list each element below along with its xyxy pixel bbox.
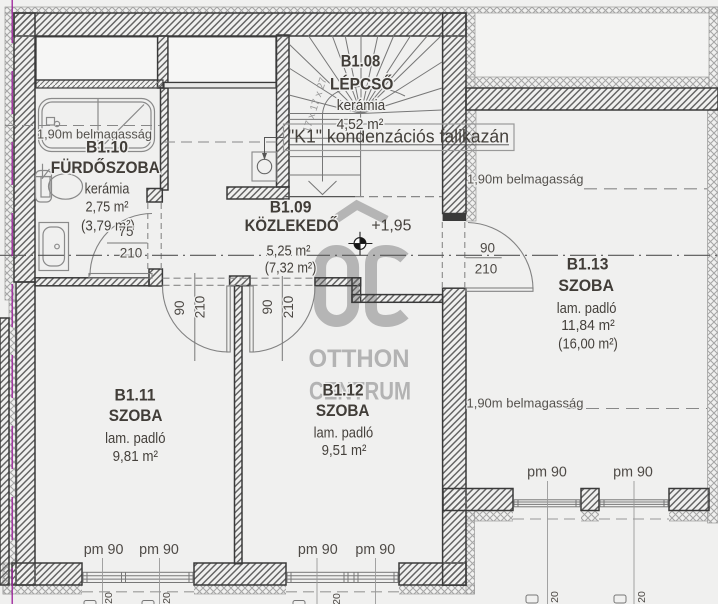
svg-text:B1.10: B1.10 xyxy=(86,138,128,157)
svg-text:2,75 m²: 2,75 m² xyxy=(86,198,129,215)
svg-text:90: 90 xyxy=(260,299,275,314)
svg-text:SZOBA: SZOBA xyxy=(558,276,614,295)
svg-text:(7,32 m²): (7,32 m²) xyxy=(265,260,317,277)
svg-text:90: 90 xyxy=(480,241,495,256)
svg-text:11,84 m²: 11,84 m² xyxy=(561,317,615,334)
svg-text:9,51 m²: 9,51 m² xyxy=(322,442,367,459)
svg-text:OTTHON: OTTHON xyxy=(309,345,410,373)
svg-text:kerámia: kerámia xyxy=(337,97,386,114)
svg-text:20: 20 xyxy=(636,591,648,603)
svg-text:B1.08: B1.08 xyxy=(341,52,381,71)
svg-text:210: 210 xyxy=(120,246,143,261)
svg-text:SZOBA: SZOBA xyxy=(316,401,370,420)
svg-text:210: 210 xyxy=(475,262,498,277)
svg-text:1,90m belmagasság: 1,90m belmagasság xyxy=(467,172,584,187)
svg-text:B1.11: B1.11 xyxy=(115,386,156,405)
svg-text:90: 90 xyxy=(172,300,187,315)
svg-text:9,81 m²: 9,81 m² xyxy=(113,448,158,465)
svg-text:pm 90: pm 90 xyxy=(84,542,124,558)
svg-text:20: 20 xyxy=(103,592,115,604)
svg-text:20: 20 xyxy=(161,592,173,604)
svg-text:B1.13: B1.13 xyxy=(567,255,609,274)
svg-text:pm 90: pm 90 xyxy=(355,542,395,558)
svg-text:B1.12: B1.12 xyxy=(323,381,364,400)
svg-text:(16,00 m²): (16,00 m²) xyxy=(558,336,618,353)
svg-text:SZOBA: SZOBA xyxy=(109,406,163,425)
svg-text:lam. padló: lam. padló xyxy=(105,430,165,447)
svg-text:1,90m belmagasság: 1,90m belmagasság xyxy=(467,395,584,410)
svg-text:210: 210 xyxy=(193,296,208,319)
svg-text:pm 90: pm 90 xyxy=(527,465,567,481)
svg-text:pm 90: pm 90 xyxy=(298,542,338,558)
svg-text:20: 20 xyxy=(549,591,561,603)
svg-text:KÖZLEKEDŐ: KÖZLEKEDŐ xyxy=(245,216,339,235)
svg-text:FÜRDŐSZOBA: FÜRDŐSZOBA xyxy=(51,158,160,177)
svg-text:+1,95: +1,95 xyxy=(371,218,411,235)
svg-text:210: 210 xyxy=(281,296,296,319)
svg-text:5,25 m²: 5,25 m² xyxy=(267,242,311,259)
svg-text:kerámia: kerámia xyxy=(85,181,130,198)
svg-text:20: 20 xyxy=(331,593,343,604)
svg-text:75: 75 xyxy=(118,224,133,239)
svg-text:B1.09: B1.09 xyxy=(270,198,312,217)
svg-text:LÉPCSŐ: LÉPCSŐ xyxy=(330,74,394,93)
svg-text:lam. padló: lam. padló xyxy=(314,425,374,442)
svg-text:pm 90: pm 90 xyxy=(613,465,653,481)
svg-text:4,52 m²: 4,52 m² xyxy=(337,116,384,133)
svg-text:pm 90: pm 90 xyxy=(139,542,179,558)
svg-text:"K1" kondenzációs falikazán: "K1" kondenzációs falikazán xyxy=(288,127,509,147)
svg-text:lam. padló: lam. padló xyxy=(557,300,617,317)
